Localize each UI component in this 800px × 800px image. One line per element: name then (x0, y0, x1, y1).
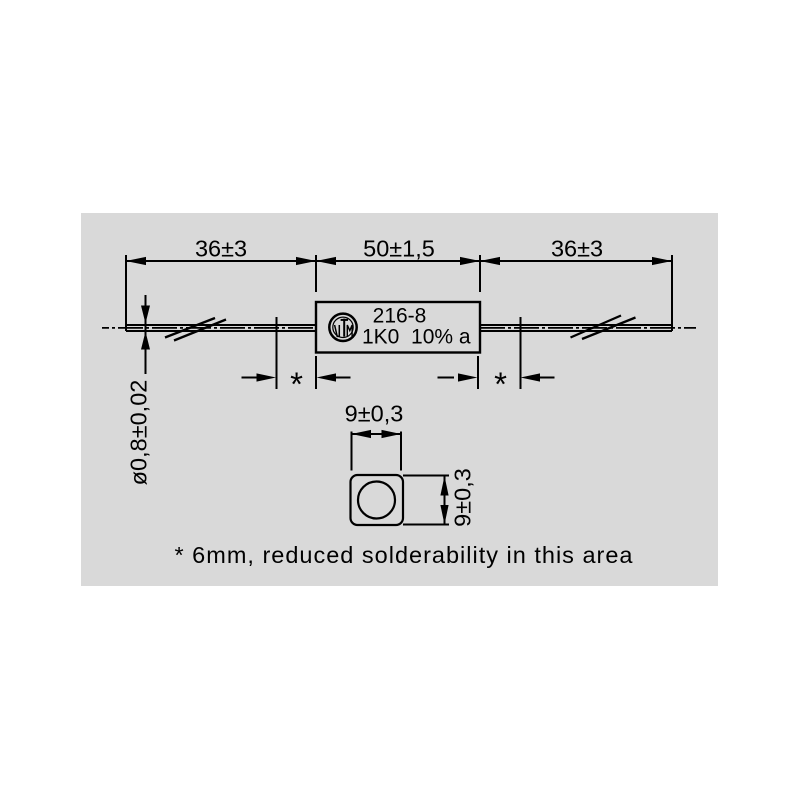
svg-text:216-8: 216-8 (373, 305, 427, 328)
svg-text:ø0,8±0,02: ø0,8±0,02 (126, 380, 152, 486)
svg-text:9±0,3: 9±0,3 (450, 468, 476, 527)
svg-text:36±3: 36±3 (195, 236, 247, 262)
svg-text:50±1,5: 50±1,5 (363, 236, 435, 262)
svg-text:* 6mm, reduced solderability i: * 6mm, reduced solderability in this are… (175, 542, 634, 568)
svg-text:9±0,3: 9±0,3 (345, 401, 404, 427)
svg-text:36±3: 36±3 (551, 236, 603, 262)
svg-text:*: * (290, 366, 303, 403)
svg-text:*: * (494, 366, 507, 403)
svg-text:1K0 10% a: 1K0 10% a (362, 326, 471, 349)
